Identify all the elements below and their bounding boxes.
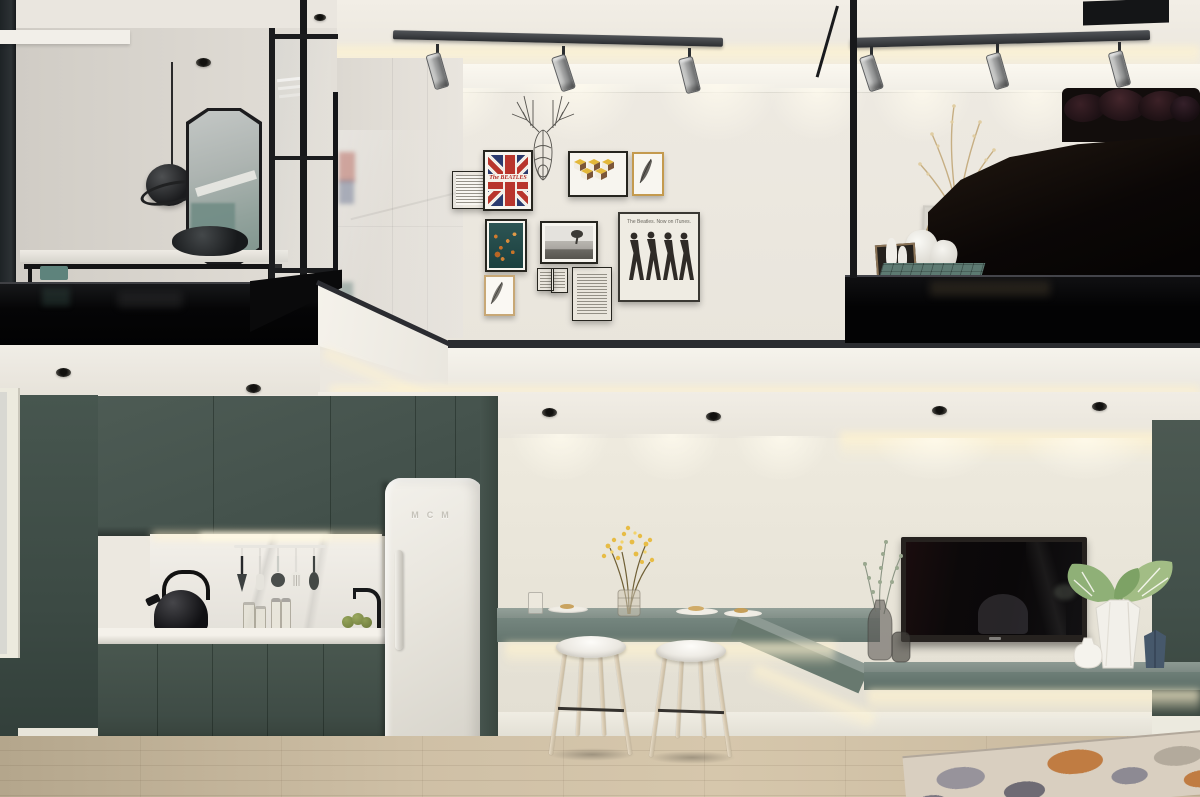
recessed-spotlight — [314, 14, 326, 21]
wall-light-arc-lower — [1010, 438, 1160, 518]
stool-footrest — [558, 707, 624, 712]
kitchen-countertop — [98, 628, 397, 644]
left-fascia-strip — [0, 345, 320, 395]
cabinet-seam — [212, 644, 213, 746]
recessed-spotlight — [706, 412, 721, 421]
dressing-room-ceiling — [0, 0, 337, 28]
partition-post — [300, 0, 307, 284]
feather-art — [634, 154, 658, 190]
vanity-leg — [28, 268, 32, 282]
partition-post — [269, 28, 275, 282]
wall-light-arc-lower — [724, 436, 839, 522]
glass-reflection-unionjack — [339, 152, 355, 182]
door-inner — [0, 392, 7, 654]
feather-print-gold-frame — [632, 152, 664, 196]
bed-pillow — [1170, 96, 1200, 122]
track-spotlight — [1112, 42, 1127, 87]
cabinet-column-right — [480, 396, 498, 748]
tv-brand-logo — [989, 637, 1001, 640]
screen-reflection-chair — [978, 594, 1028, 634]
wall-light-arc-lower — [500, 434, 620, 524]
recessed-spotlight — [932, 406, 947, 415]
black-basin — [172, 226, 248, 256]
loft-apartment-scene: The BEATLES The Beatles. Now on iTu — [0, 0, 1200, 797]
itunes-caption: The Beatles. Now on iTunes. — [620, 219, 698, 225]
typography-print-large — [572, 267, 612, 321]
stool-leg — [598, 644, 607, 736]
stool-leg — [713, 650, 732, 758]
recessed-spotlight — [542, 408, 557, 417]
drinking-glass — [528, 592, 543, 614]
cabinet-seam — [213, 396, 214, 536]
geometric-cubes-print — [568, 151, 628, 197]
teal-floral-abstract — [485, 219, 527, 272]
gloss-reflection-khaki — [930, 281, 1050, 296]
stool-footrest — [658, 709, 724, 714]
stool-leg — [649, 650, 668, 758]
cabinet-seam — [267, 644, 268, 746]
feather-sketch — [486, 277, 509, 310]
recessed-spotlight — [196, 58, 211, 67]
feather-sketch-wood-frame — [484, 275, 515, 316]
yellow-flower-vase — [588, 518, 672, 620]
wall-light-arc-lower — [860, 438, 1010, 518]
cubes-art — [574, 157, 614, 183]
plate-food — [560, 604, 574, 609]
gloss-reflection-light — [118, 292, 182, 308]
fascia-white-band — [448, 348, 1200, 388]
track-spotlight — [864, 46, 879, 91]
monstera-white-vase-group — [1052, 540, 1176, 672]
glass-reflection-unionjack-blue — [339, 180, 354, 204]
mini-frame-pair-right — [551, 268, 568, 293]
kitchen-base-cabinets — [98, 644, 385, 746]
gloss-reflection-teal — [42, 288, 70, 306]
union-jack-beatles-print: The BEATLES — [483, 150, 533, 211]
ceiling-black-beam — [1083, 0, 1169, 26]
stool-leg — [613, 646, 632, 755]
teal-tray — [40, 266, 68, 280]
bed-platform-black — [845, 275, 1200, 343]
railing-post — [850, 0, 857, 278]
recessed-spotlight — [246, 384, 261, 393]
union-jack-art: The BEATLES — [488, 155, 528, 206]
track-spotlight — [682, 48, 697, 93]
track-spotlight — [430, 44, 445, 89]
cabinet-seam — [323, 644, 324, 746]
tree-trunk — [575, 235, 579, 244]
vanity-counter — [20, 250, 288, 262]
fridge-logo: MCM — [385, 510, 483, 520]
upper-ceiling — [318, 0, 1200, 50]
retro-fridge: MCM — [385, 478, 483, 750]
eucalyptus-glass-vases — [856, 532, 918, 668]
fridge-handle — [395, 550, 403, 650]
bar-stool — [550, 636, 640, 758]
track-spotlight — [556, 46, 571, 91]
white-header-beam — [0, 30, 130, 44]
recessed-spotlight — [1092, 402, 1107, 411]
partition-rail — [269, 156, 338, 160]
beatles-itunes-poster: The Beatles. Now on iTunes. — [618, 212, 700, 302]
mirror-reflection-shelf — [195, 170, 257, 197]
stool-seat — [656, 640, 726, 662]
black-white-landscape-photo — [540, 221, 598, 264]
stool-seat — [556, 636, 626, 658]
under-shelf-led — [868, 690, 1200, 714]
plate-food — [688, 606, 704, 611]
teal-abstract-art — [489, 223, 523, 268]
track-spotlight — [990, 44, 1005, 89]
wall-light-arc — [758, 88, 878, 188]
stool-leg — [549, 646, 568, 755]
cabinet-seam — [157, 644, 158, 746]
under-cabinet-led-hotspot — [200, 533, 330, 540]
cabinet-seam — [330, 396, 331, 536]
faucet-spout-tip — [353, 590, 356, 599]
beatles-figures — [624, 228, 694, 294]
wall-light-arc-lower — [612, 434, 732, 524]
stair-side-wall — [337, 58, 463, 338]
recessed-spotlight — [56, 368, 71, 377]
bar-stool — [650, 640, 740, 762]
landscape-photo — [545, 226, 593, 259]
partition-rail — [269, 34, 338, 39]
plate-food — [734, 608, 748, 613]
union-jack-title: The BEATLES — [487, 174, 529, 182]
pendant-lamp-cord — [171, 62, 173, 166]
media-shelf-front — [864, 672, 1200, 690]
